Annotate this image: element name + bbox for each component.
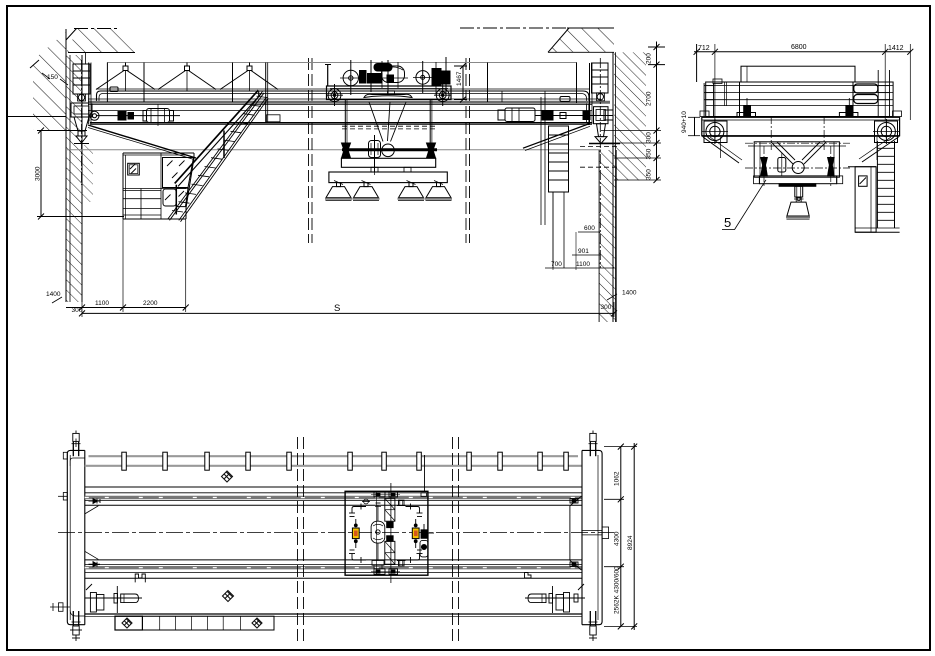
svg-text:2562K 4300/600: 2562K 4300/600	[614, 566, 621, 614]
svg-text:350: 350	[646, 148, 653, 159]
svg-text:2700: 2700	[646, 91, 653, 106]
svg-text:5: 5	[724, 215, 731, 230]
svg-text:4300: 4300	[614, 531, 621, 546]
svg-text:3000: 3000	[35, 166, 42, 181]
svg-text:8924: 8924	[627, 535, 634, 550]
svg-text:300: 300	[646, 132, 653, 143]
svg-text:940+10: 940+10	[681, 111, 688, 133]
svg-text:150: 150	[47, 74, 58, 81]
svg-text:1100: 1100	[95, 300, 109, 307]
svg-text:1467: 1467	[456, 71, 463, 86]
svg-text:712: 712	[698, 45, 710, 52]
svg-text:700: 700	[551, 261, 562, 268]
svg-text:S: S	[334, 303, 340, 314]
svg-text:1100: 1100	[576, 261, 590, 268]
svg-text:901: 901	[578, 248, 589, 255]
svg-text:350: 350	[646, 169, 653, 180]
svg-text:1400: 1400	[622, 290, 637, 297]
svg-text:1400: 1400	[46, 291, 61, 298]
svg-text:300: 300	[72, 307, 83, 314]
svg-text:600: 600	[584, 225, 595, 232]
svg-text:6800: 6800	[791, 44, 807, 51]
svg-text:1412: 1412	[888, 45, 904, 52]
svg-text:200: 200	[646, 53, 653, 64]
svg-text:2200: 2200	[143, 300, 158, 307]
svg-text:1062: 1062	[614, 471, 621, 486]
